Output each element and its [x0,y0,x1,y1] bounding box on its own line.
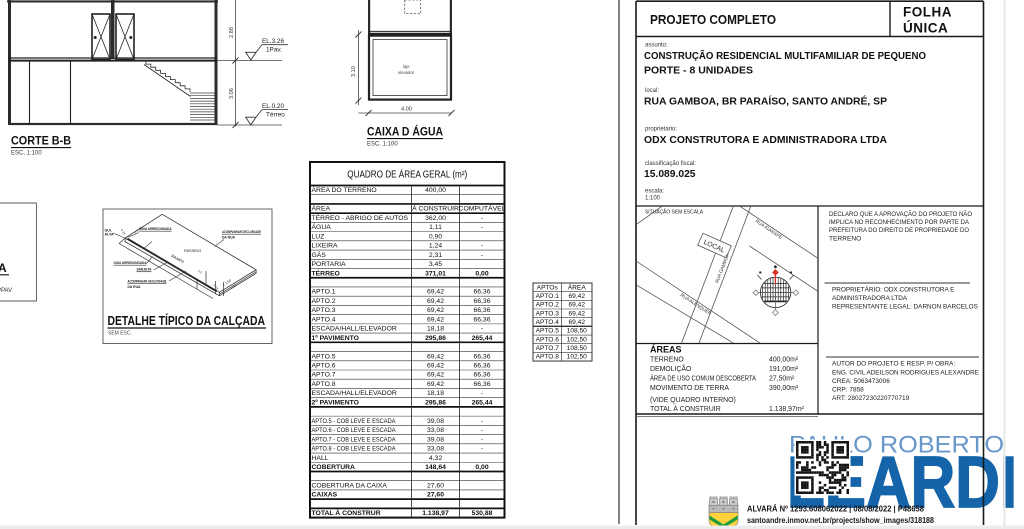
svg-text:69,42: 69,42 [427,353,444,360]
svg-text:APTO.2: APTO.2 [536,302,560,309]
svg-text:laje: laje [403,64,410,69]
svg-text:APTO.5: APTO.5 [536,328,560,335]
svg-text:APTO.7: APTO.7 [536,345,560,352]
svg-text:APTO.6: APTO.6 [312,363,336,370]
svg-text:362,00: 362,00 [425,215,446,222]
svg-text:69,42: 69,42 [568,310,585,317]
svg-text:-: - [481,215,483,222]
svg-text:295,86: 295,86 [425,399,446,406]
svg-text:TÉRREO - ABRIGO DE AUTOS: TÉRREO - ABRIGO DE AUTOS [312,213,409,222]
svg-text:66,36: 66,36 [473,353,490,360]
svg-text:102,50: 102,50 [567,354,588,361]
svg-text:-: - [481,390,483,397]
svg-text:4.00: 4.00 [401,107,412,113]
svg-text:18,18: 18,18 [427,390,444,397]
svg-text:ALTA: ALTA [105,233,114,237]
svg-text:TÉRREO: TÉRREO [312,268,340,277]
svg-text:COBERTURA: COBERTURA [312,464,356,471]
svg-text:33,08: 33,08 [427,446,444,453]
svg-text:SEM ESC.: SEM ESC. [108,331,132,337]
svg-text:APTO.7 - COB LEVE E ESCADA: APTO.7 - COB LEVE E ESCADA [312,436,396,443]
svg-text:PASSEIO: PASSEIO [184,248,201,253]
svg-text:108,50: 108,50 [567,345,588,352]
svg-text:3.10: 3.10 [351,66,357,77]
svg-text:295,86: 295,86 [425,335,446,342]
svg-text:69,42: 69,42 [427,289,444,296]
svg-text:(VIDE QUADRO INTERNO): (VIDE QUADRO INTERNO) [650,397,736,404]
svg-text:-: - [481,252,483,259]
svg-text:DETALHE TÍPICO DA CALÇADA: DETALHE TÍPICO DA CALÇADA [108,313,266,328]
svg-text:APTO.3: APTO.3 [312,307,336,314]
svg-text:69,42: 69,42 [427,307,444,314]
svg-text:LIXEIRA: LIXEIRA [312,243,339,250]
svg-text:ÁGUA: ÁGUA [312,222,332,231]
svg-text:ESC. 1:100: ESC. 1:100 [11,151,42,157]
svg-text:APTO.8 - COB LEVE E ESCADA: APTO.8 - COB LEVE E ESCADA [312,446,396,453]
svg-text:APTO.2: APTO.2 [312,298,336,305]
svg-text:400,00m²: 400,00m² [769,357,799,364]
svg-text:66,36: 66,36 [473,307,490,314]
svg-text:-: - [481,436,483,443]
svg-text:ÁREA: ÁREA [568,282,587,291]
svg-text:MOVIMENTO DE TERRA: MOVIMENTO DE TERRA [650,385,729,392]
svg-text:RUA GAMBOA, BR PARAÍSO, SANTO: RUA GAMBOA, BR PARAÍSO, SANTO ANDRÉ, SP [644,95,887,108]
svg-text:PPAV: PPAV [0,288,12,294]
svg-text:DEMOLIÇÃO: DEMOLIÇÃO [650,364,692,373]
svg-text:proprietario:: proprietario: [645,127,677,133]
svg-text:elevador: elevador [398,70,415,75]
svg-text:2,31: 2,31 [429,252,442,259]
svg-text:27,60: 27,60 [427,482,444,489]
svg-text:APTO.8: APTO.8 [312,381,336,388]
svg-text:108,50: 108,50 [567,328,588,335]
svg-text:ESC. 1:100: ESC. 1:100 [367,142,398,148]
svg-text:GUIA ARREDONDADA: GUIA ARREDONDADA [140,227,172,231]
svg-text:APTO.1: APTO.1 [312,289,336,296]
svg-text:148,64: 148,64 [425,464,446,471]
svg-text:390,00m²: 390,00m² [769,385,799,392]
svg-text:DA RUA: DA RUA [222,235,235,239]
svg-text:66,36: 66,36 [473,363,490,370]
svg-text:PREFEITURA DO DIREITO DE PROPR: PREFEITURA DO DIREITO DE PROPRIEDADE DO [829,227,969,234]
svg-text:69,42: 69,42 [427,363,444,370]
svg-text:69,42: 69,42 [568,302,585,309]
svg-text:COMPUTÁVEL: COMPUTÁVEL [459,204,506,213]
svg-text:APTO.6 - COB LEVE E ESCADA: APTO.6 - COB LEVE E ESCADA [312,427,396,434]
svg-text:ÁREA: ÁREA [312,204,331,213]
svg-text:GUIA ARREDONDADA: GUIA ARREDONDADA [114,261,147,265]
svg-text:1º PAVIMENTO: 1º PAVIMENTO [312,335,359,342]
svg-text:265,44: 265,44 [472,399,493,406]
svg-text:AUTOR DO PROJETO E RESP. P/ OB: AUTOR DO PROJETO E RESP. P/ OBRA: [832,361,955,368]
svg-text:-: - [481,446,483,453]
svg-text:APTO.3: APTO.3 [536,310,560,317]
svg-text:27,60: 27,60 [427,492,444,499]
svg-text:39,08: 39,08 [427,418,444,425]
svg-text:COBERTURA DA CAIXA: COBERTURA DA CAIXA [312,482,388,489]
svg-text:CAIXAS: CAIXAS [312,492,338,499]
svg-text:PORTARIA: PORTARIA [312,261,347,268]
svg-text:PORTE - 8 UNIDADES: PORTE - 8 UNIDADES [644,66,753,77]
svg-text:APTO.4: APTO.4 [312,316,336,323]
svg-text:1.138,97: 1.138,97 [422,510,449,517]
svg-text:escala:: escala: [645,189,664,195]
svg-text:ESCADA/HALL/ELEVADOR: ESCADA/HALL/ELEVADOR [312,326,397,333]
svg-text:LUZ: LUZ [312,233,325,240]
svg-text:IMPLICA NO RECONHECIMENTO POR: IMPLICA NO RECONHECIMENTO POR PARTE DA [829,219,970,226]
svg-text:ENG. CIVIL ADEILSON RODRIGUES: ENG. CIVIL ADEILSON RODRIGUES ALEXANDRE [832,369,980,376]
svg-text:530,88: 530,88 [472,510,493,517]
svg-text:102,50: 102,50 [567,336,588,343]
svg-text:APTO.8: APTO.8 [536,354,560,361]
svg-text:TERRENO: TERRENO [829,235,861,242]
svg-text:CAIXA D ÁGUA: CAIXA D ÁGUA [367,126,443,139]
svg-text:TOTAL À CONSTRUR: TOTAL À CONSTRUR [312,508,381,517]
svg-text:-: - [481,418,483,425]
svg-text:APTOs: APTOs [537,284,559,291]
svg-text:ADMINISTRADORA LTDA: ADMINISTRADORA LTDA [832,295,908,302]
svg-text:3,45: 3,45 [429,261,442,268]
svg-text:local:: local: [645,88,659,94]
svg-text:15.089.025: 15.089.025 [644,169,696,180]
svg-text:EL.0.20: EL.0.20 [262,103,284,110]
svg-text:69,42: 69,42 [427,298,444,305]
svg-text:66,36: 66,36 [473,289,490,296]
svg-text:66,36: 66,36 [473,372,490,379]
svg-text:66,36: 66,36 [473,381,490,388]
svg-text:Térreo: Térreo [266,112,285,119]
svg-text:FOLHA: FOLHA [903,5,952,20]
svg-text:2º PAVIMENTO: 2º PAVIMENTO [312,399,359,406]
svg-text:39,08: 39,08 [427,436,444,443]
svg-text:EL.3.26: EL.3.26 [262,38,284,45]
svg-text:1:100: 1:100 [645,196,661,202]
svg-text:APTO.7: APTO.7 [312,372,336,379]
svg-text:69,42: 69,42 [427,381,444,388]
svg-text:ODX CONSTRUTORA E ADMINISTRADO: ODX CONSTRUTORA E ADMINISTRADORA LTDA [644,135,888,146]
svg-text:A: A [0,261,7,275]
svg-text:3.06: 3.06 [229,88,235,99]
svg-text:0,90: 0,90 [429,233,442,240]
svg-text:ACOMPANHAR DECLIVIDADE: ACOMPANHAR DECLIVIDADE [128,280,167,284]
svg-text:ÁREA DE USO COMUM DESCOBERTA: ÁREA DE USO COMUM DESCOBERTA [650,373,756,382]
svg-text:CORTE B-B: CORTE B-B [11,136,71,148]
svg-text:66,36: 66,36 [473,298,490,305]
svg-text:PROJETO COMPLETO: PROJETO COMPLETO [650,12,776,27]
svg-text:1,11: 1,11 [429,224,442,231]
svg-text:-: - [481,224,483,231]
svg-text:SARJETA: SARJETA [137,268,152,272]
svg-text:1.138,97m²: 1.138,97m² [769,406,805,413]
svg-text:371,01: 371,01 [425,270,446,277]
svg-text:QUADRO DE ÁREA GERAL (m²): QUADRO DE ÁREA GERAL (m²) [347,169,467,180]
svg-text:18,18: 18,18 [427,326,444,333]
svg-text:À CONSTRUIR: À CONSTRUIR [412,204,459,213]
svg-text:CREA: 5063473006: CREA: 5063473006 [832,378,890,385]
svg-text:APTO.6: APTO.6 [536,336,560,343]
svg-text:TOTAL À CONSTRUIR: TOTAL À CONSTRUIR [650,404,721,413]
svg-text:APTO.4: APTO.4 [536,319,560,326]
svg-text:2.88: 2.88 [229,27,235,38]
svg-text:HALL: HALL [312,455,329,462]
svg-text:-: - [481,243,483,250]
svg-text:69,42: 69,42 [568,293,585,300]
svg-text:APTO.5 - COB LEVE E ESCADA: APTO.5 - COB LEVE E ESCADA [312,418,396,425]
svg-text:REPRESENTANTE LEGAL: DARNON BA: REPRESENTANTE LEGAL: DARNON BARCELOS [832,304,978,311]
svg-text:classificação fiscal:: classificação fiscal: [645,161,696,167]
svg-text:-: - [481,427,483,434]
svg-text:APTO.5: APTO.5 [312,353,336,360]
svg-text:4,32: 4,32 [429,455,442,462]
svg-text:assunto:: assunto: [645,43,668,49]
svg-text:CRP: 7858: CRP: 7858 [832,386,864,393]
svg-text:GÁS: GÁS [312,250,327,259]
svg-text:33,08: 33,08 [427,427,444,434]
svg-text:ESCADA/HALL/ELEVADOR: ESCADA/HALL/ELEVADOR [312,390,397,397]
svg-text:191,00m²: 191,00m² [769,366,799,373]
svg-text:0,00: 0,00 [475,464,488,471]
svg-text:APTO.1: APTO.1 [536,293,560,300]
svg-text:DA RUA: DA RUA [128,285,141,289]
svg-text:DECLARO QUE A APROVAÇÃO DO PRO: DECLARO QUE A APROVAÇÃO DO PROJETO NÃO [829,209,972,218]
svg-text:ACOMPANHAR DECLIVIDADE: ACOMPANHAR DECLIVIDADE [222,230,261,234]
svg-text:69,42: 69,42 [427,372,444,379]
svg-text:1Pav.: 1Pav. [266,47,282,54]
svg-text:66,36: 66,36 [473,316,490,323]
svg-text:-: - [481,326,483,333]
svg-text:69,42: 69,42 [568,319,585,326]
svg-text:ÚNICA: ÚNICA [903,21,948,36]
svg-text:ÁREA DO TERRENO: ÁREA DO TERRENO [312,185,377,194]
svg-text:santoandre.inmov.net.br/projec: santoandre.inmov.net.br/projects/show_im… [747,515,934,525]
svg-text:ALVARÁ Nº 1293.608062022 | 08/: ALVARÁ Nº 1293.608062022 | 08/08/2022 | … [747,504,924,514]
svg-text:69,42: 69,42 [427,316,444,323]
svg-text:TERRENO: TERRENO [650,357,684,364]
svg-text:27,50m²: 27,50m² [769,375,795,382]
svg-text:SITUAÇÃO SEM ESCALA: SITUAÇÃO SEM ESCALA [645,209,703,216]
svg-text:400,00: 400,00 [425,187,446,194]
svg-text:CONSTRUÇÃO RESIDENCIAL MULTIFA: CONSTRUÇÃO RESIDENCIAL MULTIFAMILIAR DE … [644,49,926,62]
svg-text:265,44: 265,44 [472,335,493,342]
svg-text:PROPRIETÁRIO: ODX CONSTRUTORA: PROPRIETÁRIO: ODX CONSTRUTORA E [832,285,954,294]
svg-text:ART: 28027230220770719: ART: 28027230220770719 [832,395,910,402]
svg-text:1,24: 1,24 [429,243,442,250]
svg-text:0,00: 0,00 [475,270,488,277]
svg-text:ÁREAS: ÁREAS [650,345,682,355]
